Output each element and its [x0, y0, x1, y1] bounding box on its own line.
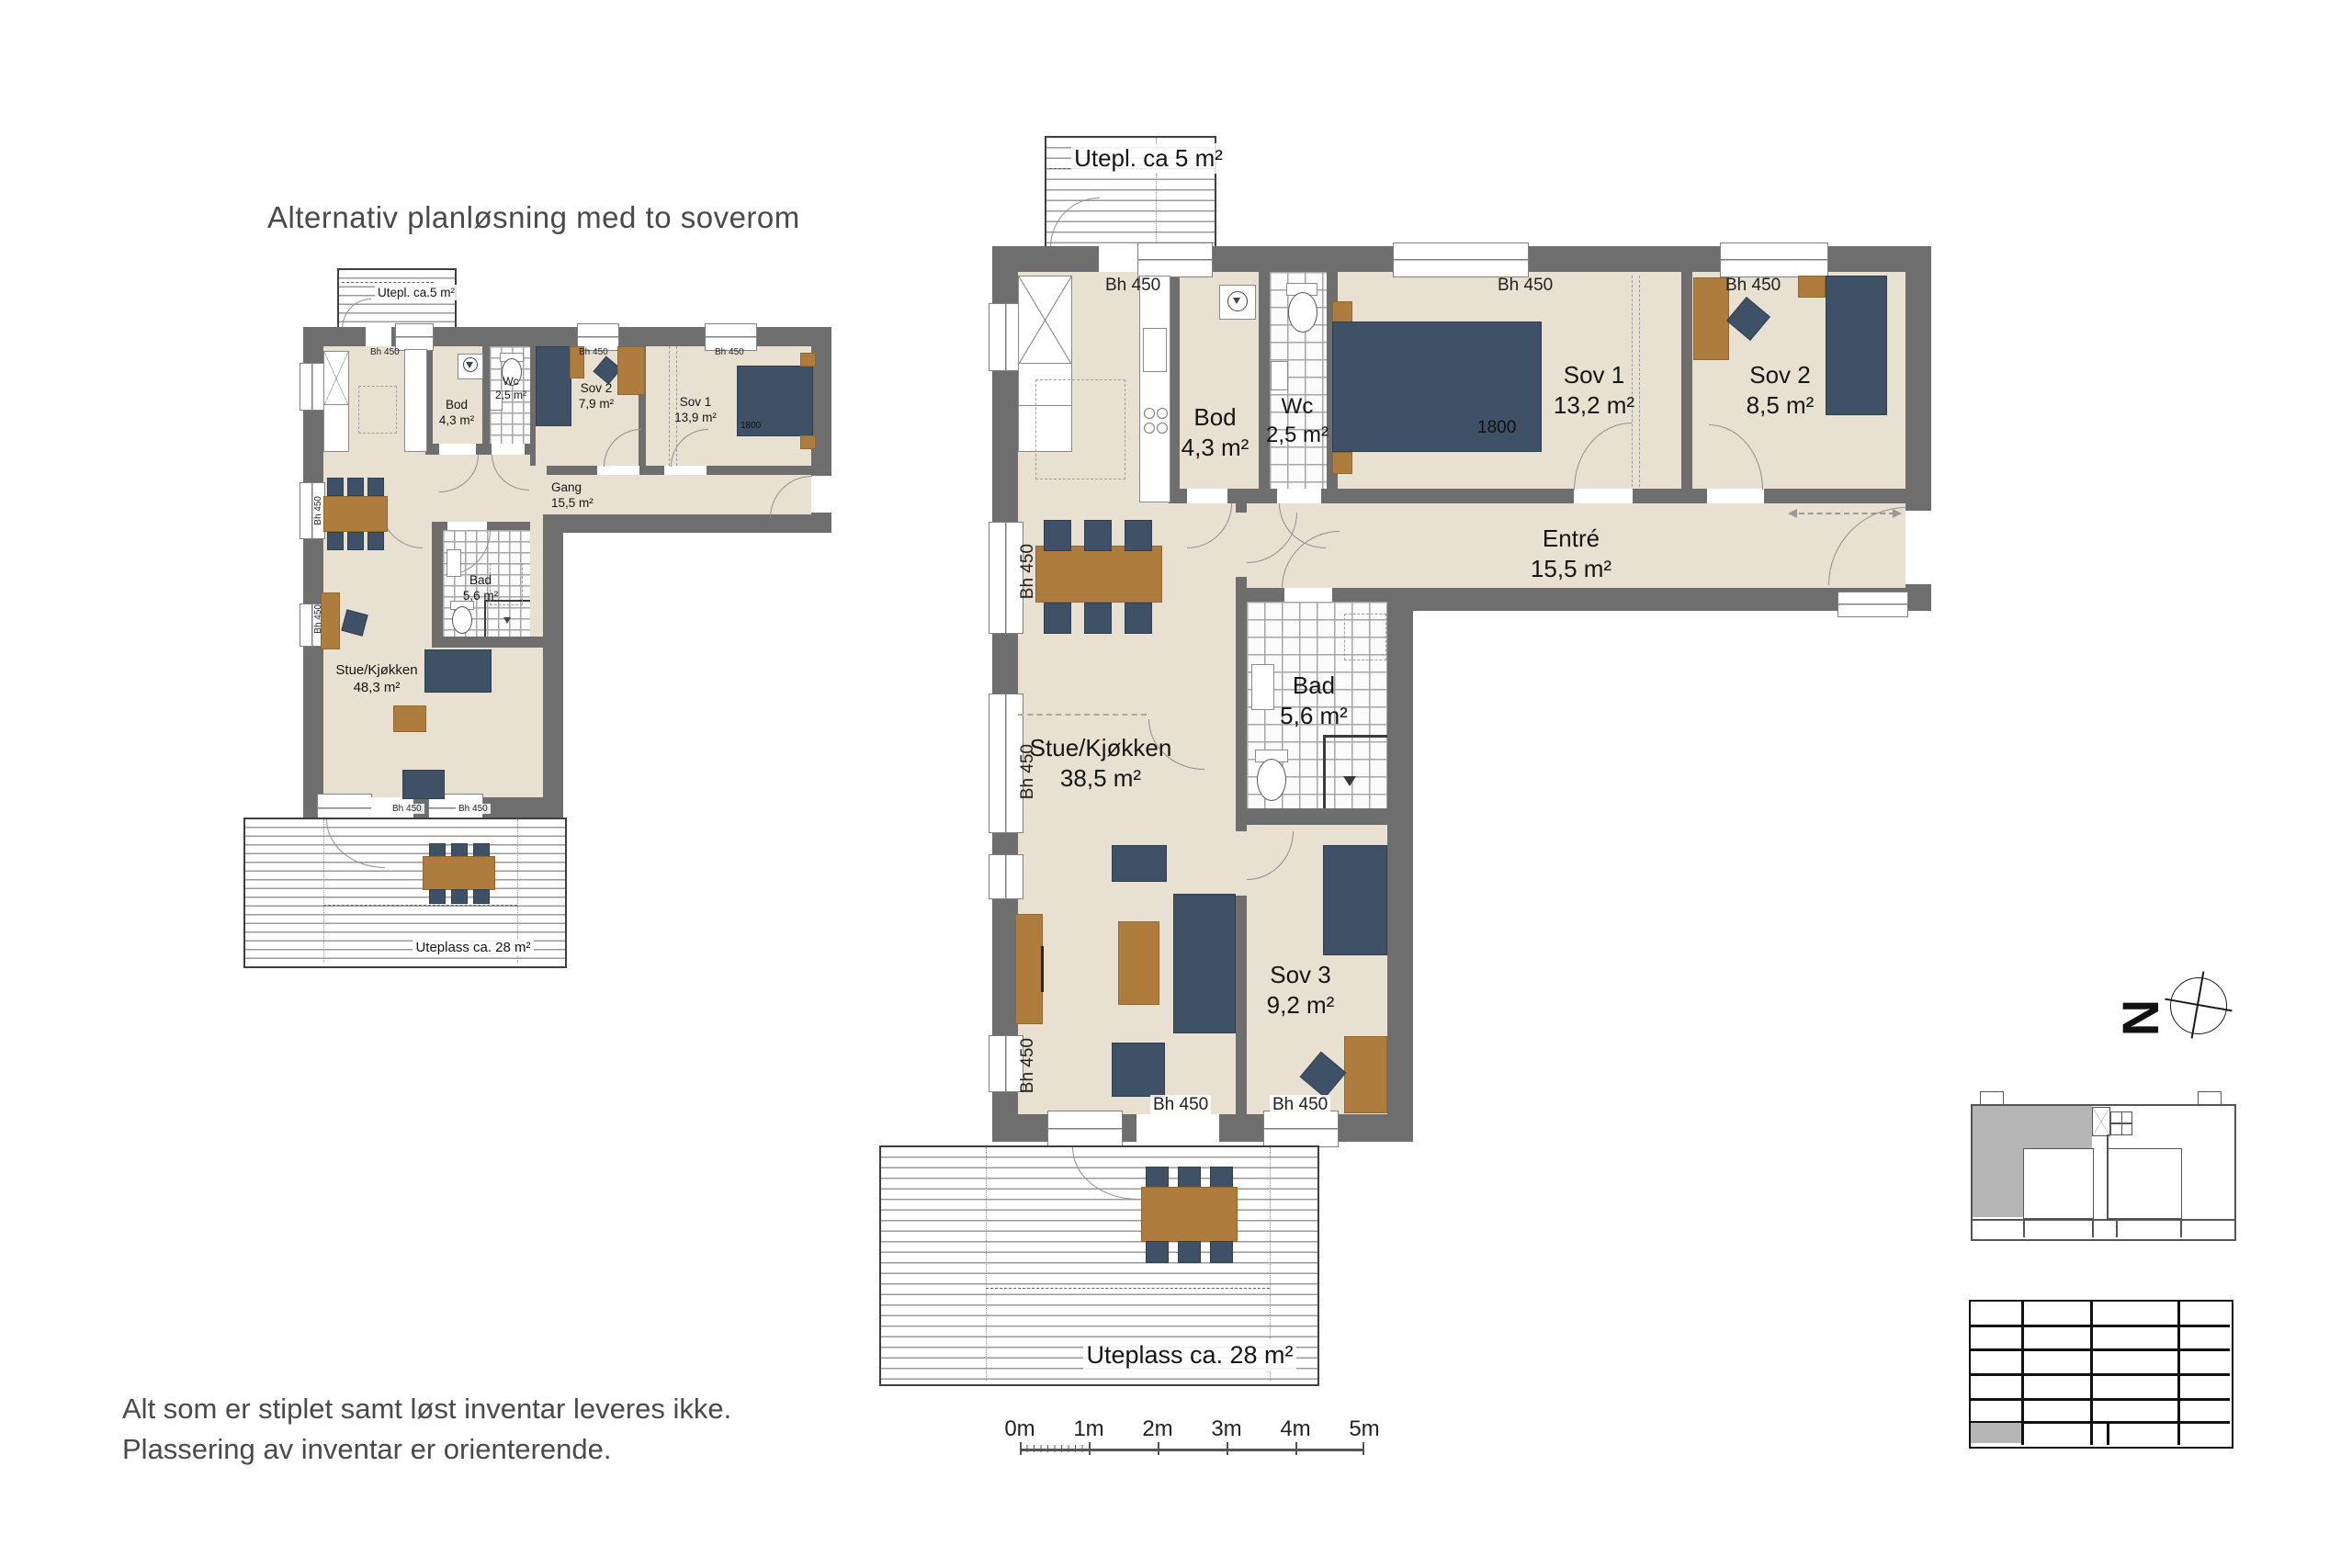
chair: [347, 478, 364, 496]
chair: [1125, 603, 1152, 634]
chair: [1146, 1241, 1169, 1263]
terrace-dashed-line: [323, 905, 517, 906]
alt-balcony-dashdot: [342, 282, 434, 283]
armchair: [1112, 1043, 1165, 1097]
entry-door-gap: [811, 476, 831, 513]
room-label-bod: Bod4,3 m²: [429, 397, 484, 429]
arrow-right-icon: [1893, 509, 1902, 518]
room-label-stue: Stue/Kjøkken38,5 m²: [1018, 733, 1183, 795]
shower-partition: [1323, 735, 1326, 808]
window-height-label: Bh 450: [390, 804, 424, 814]
chair: [429, 889, 446, 904]
chair: [1210, 1241, 1233, 1263]
chair: [473, 889, 490, 904]
grid-line: [1969, 1373, 2230, 1376]
main-terrace-label: Uteplass ca. 28 m²: [1066, 1339, 1314, 1371]
coffee-table: [393, 705, 426, 732]
door-gap: [1236, 831, 1247, 896]
window-height-label: Bh 450: [1018, 544, 1038, 599]
window-height-label: Bh 450: [1018, 1038, 1038, 1093]
room-label-sov1: Sov 113,2 m²: [1543, 360, 1645, 422]
window-height-label: Bh 450: [313, 496, 323, 525]
bed: [1323, 845, 1387, 955]
bed: [1826, 276, 1887, 415]
keyplan-divider: [2116, 1219, 2118, 1237]
room-label-wc: Wc2,5 m²: [485, 375, 537, 403]
outdoor-table: [423, 856, 495, 890]
keyplan-divider: [2107, 1134, 2109, 1219]
balcony-door-gap: [1099, 246, 1137, 272]
dining-table: [323, 496, 388, 532]
washer-dashed: [1344, 614, 1386, 660]
grid-line: [1969, 1348, 2230, 1351]
disclaimer-line2: Plassering av inventar er orienterende.: [122, 1433, 611, 1465]
nightstand: [1332, 452, 1352, 474]
nightstand: [1332, 301, 1352, 323]
keyplan-stairs: [2110, 1111, 2132, 1135]
kitchen-island-dashed: [358, 386, 397, 434]
door-gap: [1277, 489, 1321, 503]
wardrobe-cabinet: [1018, 276, 1072, 365]
disclaimer-text: Alt som er stiplet samt løst inventar le…: [122, 1389, 731, 1470]
compass-circle-icon: [2170, 977, 2227, 1034]
cooktop-burner: [1144, 408, 1155, 419]
tv-bench: [1015, 914, 1043, 1024]
bed-width-label: 1800: [741, 421, 761, 431]
window: [1137, 243, 1213, 277]
chair: [1146, 1167, 1169, 1189]
window: [1837, 592, 1908, 617]
scale-label-4m: 4m: [1268, 1416, 1323, 1442]
floor-plan-sheet: Alternativ planløsning med to soverom Al…: [0, 0, 2352, 1568]
window-height-label: Bh 450: [715, 347, 744, 357]
scale-tick: [1158, 1442, 1159, 1455]
door-gap: [1187, 489, 1227, 503]
wardrobe-cabinet: [323, 351, 349, 406]
room-label-sov2: Sov 27,9 m²: [560, 380, 633, 412]
chair: [1044, 520, 1071, 551]
cooktop-burner: [1157, 423, 1168, 434]
shelf: [1798, 276, 1826, 298]
window-height-label: Bh 450: [1018, 744, 1038, 799]
interior-wall: [1259, 272, 1270, 503]
cooktop-burner: [1144, 423, 1155, 434]
chair: [327, 532, 344, 550]
opening: [1236, 513, 1247, 577]
interior-wall: [432, 530, 443, 648]
kitchen-counter: [1139, 276, 1170, 502]
chair: [367, 478, 384, 496]
room-label-sov1: Sov 113,9 m²: [659, 394, 732, 426]
keyplan-divider: [2092, 1219, 2094, 1237]
toilet: [1288, 292, 1317, 333]
drain-triangle-icon: [466, 362, 473, 368]
window-height-label: Bh 450: [1270, 1095, 1330, 1115]
interior-wall: [432, 637, 548, 648]
drain-triangle-icon: [1233, 298, 1240, 304]
room-label-bad: Bad5,6 m²: [1272, 671, 1355, 732]
door-gap: [447, 522, 487, 530]
grid-highlight-cell: [1971, 1423, 2021, 1443]
shower-partition: [484, 600, 486, 637]
keyplan-terrace-strip: [1971, 1219, 2236, 1241]
door-gap: [492, 444, 525, 455]
keyplan-divider: [2180, 1219, 2182, 1237]
entry-dashed-arrow: [1799, 513, 1894, 514]
room-label-stue: Stue/Kjøkken48,3 m²: [317, 661, 436, 696]
chair: [1178, 1241, 1201, 1263]
terrace-dashed-line: [986, 1288, 1270, 1289]
window: [1263, 1111, 1339, 1147]
armchair: [402, 770, 445, 799]
door-gap: [1574, 489, 1633, 503]
scale-label-0m: 0m: [992, 1416, 1047, 1442]
terrace-door-gap: [1136, 1114, 1219, 1142]
north-letter: N: [2113, 990, 2168, 1045]
chair: [327, 478, 344, 496]
alt-plan-title: Alternativ planløsning med to soverom: [267, 200, 800, 235]
keyplan-divider: [2023, 1219, 2025, 1237]
window-height-label: Bh 450: [1150, 1095, 1211, 1115]
scale-minor-ticks: [1020, 1445, 1089, 1452]
door-gap: [597, 466, 639, 475]
interior-wall: [1236, 808, 1413, 825]
sink: [1251, 664, 1274, 710]
window: [989, 854, 1023, 899]
window: [1047, 1111, 1123, 1147]
scale-tick: [1089, 1442, 1091, 1455]
sink: [1271, 361, 1288, 390]
chair: [1084, 520, 1112, 551]
scale-label-1m: 1m: [1061, 1416, 1116, 1442]
sofa: [1173, 894, 1236, 1033]
scale-label-2m: 2m: [1130, 1416, 1185, 1442]
scale-label-5m: 5m: [1337, 1416, 1392, 1442]
grid-line: [2090, 1300, 2093, 1445]
alt-balcony-label: Utepl. ca.5 m²: [366, 285, 467, 300]
window: [300, 363, 325, 411]
chair: [1044, 603, 1071, 634]
tv: [1041, 946, 1044, 992]
deck-joint: [986, 1147, 987, 1381]
bed-width-label: 1800: [1477, 418, 1516, 438]
grid-line: [1969, 1325, 2230, 1327]
arrow-left-icon: [1788, 509, 1797, 518]
window-height-label: Bh 450: [1725, 276, 1781, 296]
chair: [1210, 1167, 1233, 1189]
kitchen-counter: [404, 349, 427, 452]
grid-line: [1969, 1398, 2230, 1401]
window-height-label: Bh 450: [1498, 276, 1553, 296]
scale-tick: [1295, 1442, 1297, 1455]
toilet: [452, 606, 472, 634]
chair: [367, 532, 384, 550]
grid-line: [2021, 1300, 2024, 1445]
outdoor-table: [1141, 1187, 1238, 1242]
chair: [347, 532, 364, 550]
shower-drain-icon: [1343, 776, 1356, 786]
keyplan-room: [2023, 1148, 2094, 1219]
window: [395, 323, 434, 351]
window-height-label: Bh 450: [456, 804, 491, 814]
cooktop-burner: [1157, 408, 1168, 419]
chair: [451, 889, 468, 904]
armchair: [1112, 845, 1167, 882]
kitchen-island-dashed: [1035, 379, 1125, 479]
keyplan-elevator: [2092, 1107, 2110, 1136]
scale-label-3m: 3m: [1199, 1416, 1254, 1442]
door-gap: [664, 466, 707, 475]
kitchen-counter: [323, 404, 349, 452]
toilet: [1257, 759, 1286, 801]
coffee-table: [1118, 921, 1159, 1005]
chair: [1084, 603, 1112, 634]
keyplan-room: [2107, 1148, 2182, 1219]
door-gap: [1284, 588, 1332, 602]
wardrobe: [1693, 277, 1729, 360]
disclaimer-line1: Alt som er stiplet samt løst inventar le…: [122, 1393, 731, 1425]
door-gap: [1707, 489, 1764, 503]
window-height-label: Bh 450: [579, 347, 608, 357]
window-height-label: Bh 450: [1105, 276, 1160, 296]
window-height-label: Bh 450: [370, 347, 400, 357]
room-label-sov3: Sov 39,2 m²: [1257, 960, 1344, 1021]
window: [1720, 243, 1828, 277]
nightstand: [800, 353, 816, 367]
shower-partition: [1323, 735, 1387, 738]
room-label-bad: Bad5,6 m²: [448, 572, 513, 604]
window: [1393, 243, 1529, 277]
grid-line: [2107, 1421, 2109, 1445]
keyplan-highlight: [1973, 1106, 2024, 1217]
tv-bench: [321, 592, 340, 649]
chair: [1125, 520, 1152, 551]
interior-wall: [1681, 272, 1692, 503]
room-label-entre: Entré15,5 m²: [1507, 524, 1635, 585]
room-label-bod: Bod4,3 m²: [1181, 402, 1249, 464]
opening-dashed: [1018, 714, 1147, 716]
desk: [1344, 1036, 1387, 1113]
nightstand: [800, 435, 816, 449]
door-gap: [366, 327, 391, 346]
main-balcony-label: Utepl. ca 5 m²: [1052, 143, 1245, 174]
scale-tick: [1363, 1442, 1364, 1455]
entry-door-gap: [1905, 511, 1931, 584]
deck-joint: [323, 819, 324, 963]
room-label-gang: Gang15,5 m²: [551, 479, 625, 512]
room-label-wc: Wc2,5 m²: [1265, 393, 1329, 449]
door-gap: [439, 444, 476, 455]
kitchen-sink: [1143, 328, 1167, 372]
alt-terrace-label: Uteplass ca. 28 m²: [395, 939, 551, 956]
chair: [1178, 1167, 1201, 1189]
window-height-label: Bh 450: [313, 604, 323, 634]
shower-drain-icon: [503, 617, 511, 624]
scale-tick: [1227, 1442, 1228, 1455]
room-label-sov2: Sov 28,5 m²: [1732, 360, 1828, 422]
dining-table: [1035, 546, 1162, 603]
grid-line: [2177, 1300, 2180, 1445]
